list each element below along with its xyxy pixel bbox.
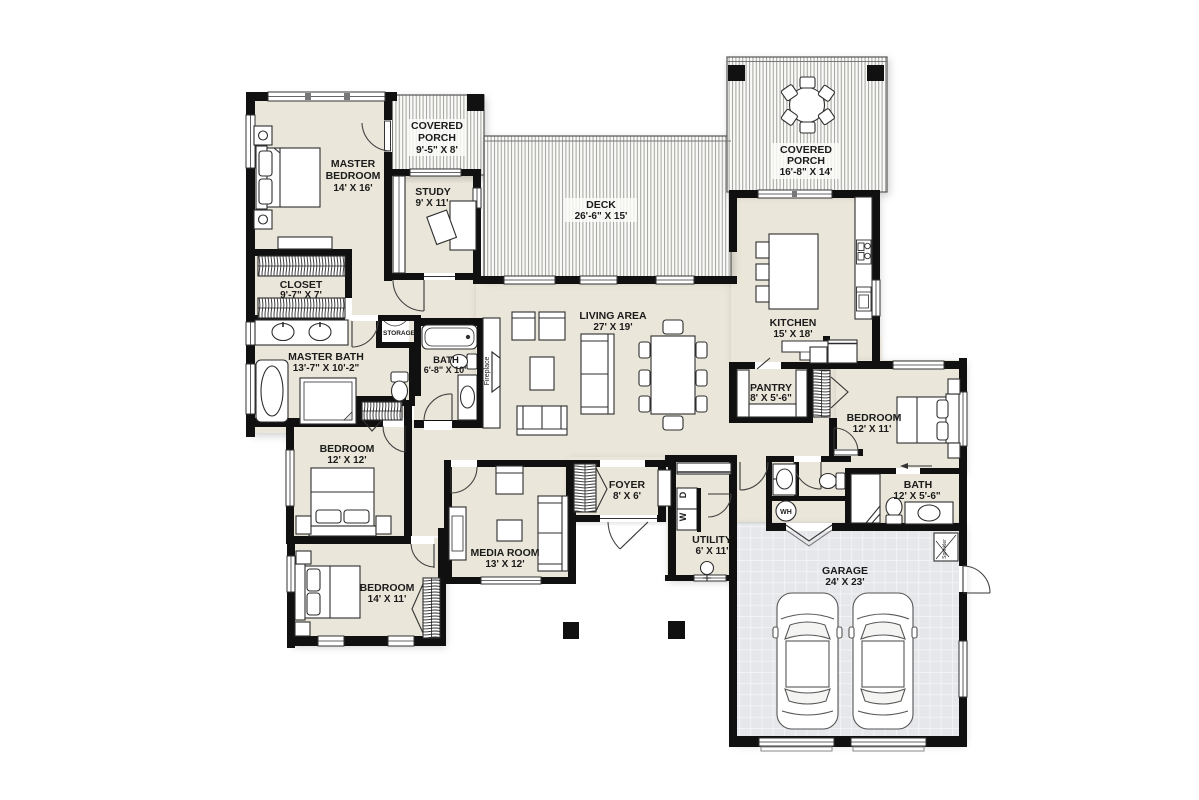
svg-text:BATH: BATH (904, 479, 932, 491)
svg-text:8' X 5'-6": 8' X 5'-6" (750, 393, 792, 404)
svg-text:MASTER BATH: MASTER BATH (288, 351, 364, 363)
svg-text:27' X 19': 27' X 19' (593, 322, 632, 333)
svg-text:6'-8" X 10': 6'-8" X 10' (424, 365, 467, 375)
svg-text:GARAGE: GARAGE (822, 565, 868, 577)
svg-text:DECK: DECK (586, 199, 616, 211)
svg-text:MEDIA ROOM: MEDIA ROOM (470, 547, 539, 559)
svg-text:Fireplace: Fireplace (484, 357, 491, 386)
svg-text:13'-7" X 10'-2": 13'-7" X 10'-2" (293, 363, 360, 374)
svg-text:STUDY: STUDY (415, 186, 451, 198)
svg-text:COVERED: COVERED (411, 120, 463, 132)
svg-text:BEDROOM: BEDROOM (320, 443, 375, 455)
svg-text:KITCHEN: KITCHEN (770, 317, 817, 329)
svg-text:BEDROOM: BEDROOM (847, 412, 902, 424)
svg-text:UTILITY: UTILITY (692, 534, 732, 546)
svg-text:Sprinkler: Sprinkler (942, 539, 948, 559)
svg-text:STORAGE: STORAGE (383, 330, 416, 337)
svg-text:26'-6" X 15': 26'-6" X 15' (575, 211, 628, 222)
svg-text:PORCH: PORCH (418, 132, 456, 144)
svg-text:BEDROOM: BEDROOM (360, 582, 415, 594)
svg-text:D: D (678, 491, 688, 498)
svg-text:24' X 23': 24' X 23' (825, 577, 864, 588)
svg-text:MASTER: MASTER (331, 158, 376, 170)
svg-text:WH: WH (780, 509, 792, 516)
svg-text:14' X 11': 14' X 11' (368, 594, 407, 605)
svg-text:9'-7" X 7': 9'-7" X 7' (280, 290, 322, 301)
svg-text:12' X 11': 12' X 11' (853, 424, 892, 435)
svg-text:PORCH: PORCH (787, 155, 825, 167)
svg-text:12' X 12': 12' X 12' (327, 455, 366, 466)
svg-text:9' X 11': 9' X 11' (415, 198, 448, 209)
svg-text:8' X 6': 8' X 6' (613, 491, 641, 502)
svg-text:BEDROOM: BEDROOM (326, 170, 381, 182)
svg-text:14' X 16': 14' X 16' (333, 183, 372, 194)
svg-text:12' X 5'-6": 12' X 5'-6" (893, 491, 941, 502)
svg-text:FOYER: FOYER (609, 479, 646, 491)
svg-text:6' X 11': 6' X 11' (695, 546, 728, 557)
svg-text:15' X 18': 15' X 18' (773, 329, 812, 340)
svg-text:16'-8" X 14': 16'-8" X 14' (780, 167, 833, 178)
svg-text:13' X 12': 13' X 12' (485, 559, 524, 570)
svg-text:W: W (678, 512, 688, 521)
svg-text:9'-5" X 8': 9'-5" X 8' (416, 145, 458, 156)
svg-text:LIVING AREA: LIVING AREA (579, 310, 647, 322)
